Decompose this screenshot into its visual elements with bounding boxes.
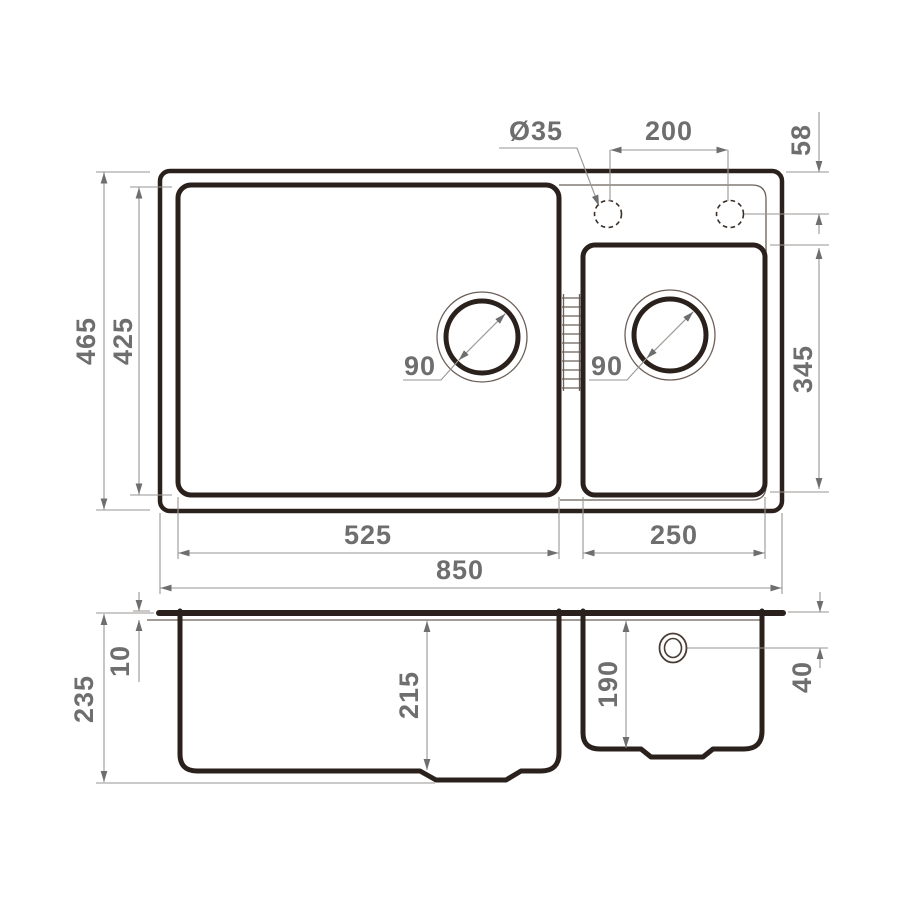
dim-main-bowl-inner-height-label: 215 [394,671,424,719]
top-view: Ø35 200 58 465 425 345 90 90 525 250 850 [71,112,829,594]
overflow-hole [660,634,829,663]
divider-drain-grooves [562,294,581,391]
dim-faucet-hole-diameter-label: Ø35 [509,116,563,146]
dim-small-bowl-inner-height-label: 190 [593,660,623,708]
dim-main-bowl-width-label: 525 [344,520,392,550]
extension-lines-section-view [96,611,829,783]
sink-outer-edge [160,171,782,511]
dim-overall-height-label: 235 [69,675,99,723]
faucet-diameter-leader [499,148,599,206]
dim-small-bowl-width-label: 250 [650,520,698,550]
dim-main-bowl-depth-label: 425 [108,317,138,365]
drawing-canvas: Ø35 200 58 465 425 345 90 90 525 250 850 [0,0,900,900]
dim-main-drain-label: 90 [404,351,436,381]
dim-small-drain-label: 90 [591,351,623,381]
dim-overall-width-label: 850 [436,555,484,585]
dim-hole-edge-offset-label: 58 [786,124,816,156]
drain-diameter-line [459,314,506,361]
extension-lines-top-view [96,150,829,594]
dim-rim-thickness-label: 10 [105,645,135,677]
dim-hole-spacing-label: 200 [645,116,693,146]
dim-small-bowl-depth-label: 345 [788,345,818,393]
main-bowl-section-profile [180,611,559,780]
dim-overall-depth-label: 465 [71,317,101,365]
drain-diameter-line [647,312,694,359]
dim-overflow-offset-label: 40 [787,661,817,693]
sink-technical-drawing: Ø35 200 58 465 425 345 90 90 525 250 850 [0,0,900,900]
main-bowl-outline [178,185,559,495]
section-view: 235 10 215 190 40 [69,592,829,783]
faucet-hole-right [717,201,744,228]
overflow-inner-ring [665,639,682,658]
